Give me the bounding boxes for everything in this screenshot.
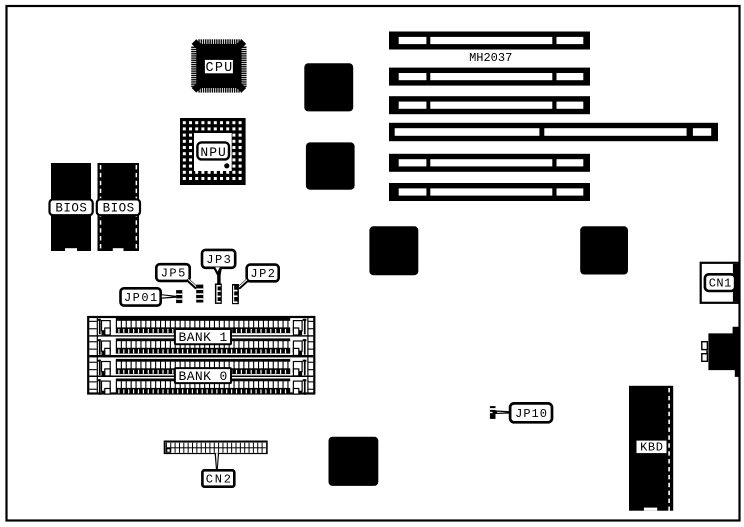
svg-text:KBD: KBD	[640, 441, 663, 455]
svg-text:JP01: JP01	[124, 291, 159, 305]
svg-text:JP3: JP3	[206, 253, 232, 267]
svg-text:BIOS: BIOS	[55, 202, 87, 216]
svg-text:JP2: JP2	[250, 267, 276, 281]
svg-text:BIOS: BIOS	[103, 202, 135, 216]
svg-text:MH2037: MH2037	[469, 51, 512, 65]
svg-text:JP5: JP5	[161, 267, 187, 281]
svg-text:BANK 1: BANK 1	[179, 330, 228, 345]
svg-text:CN1: CN1	[709, 277, 732, 291]
svg-text:CPU: CPU	[206, 61, 234, 76]
svg-text:JP10: JP10	[515, 407, 548, 421]
svg-text:BANK 0: BANK 0	[179, 369, 228, 384]
svg-text:CN2: CN2	[206, 473, 233, 487]
svg-text:NPU: NPU	[200, 145, 226, 160]
